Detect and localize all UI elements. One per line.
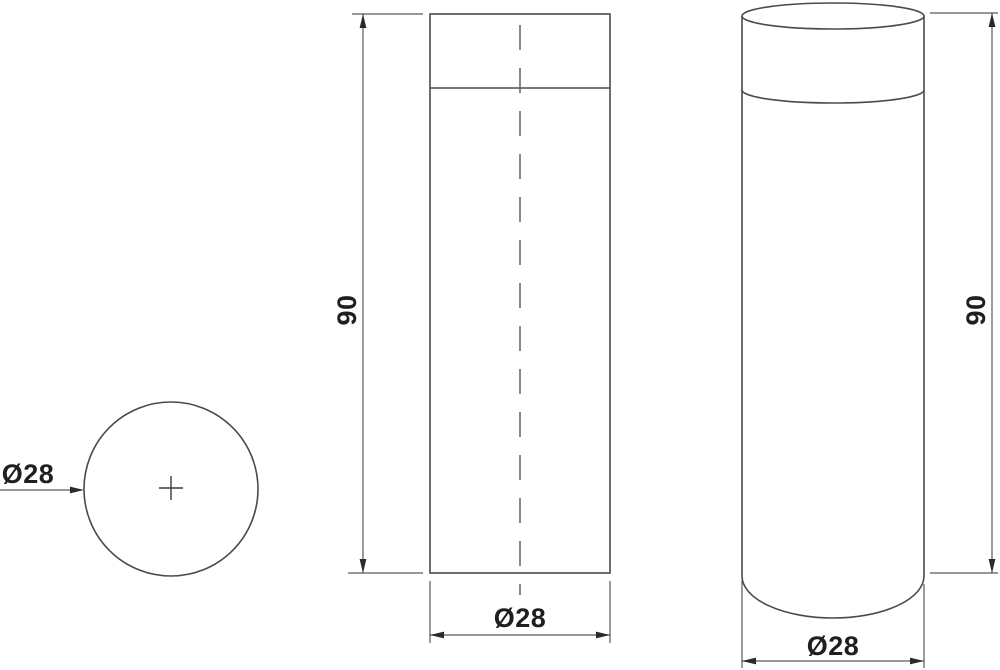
top-diameter-dimension: Ø28 <box>0 459 84 493</box>
arrowhead-down-icon <box>989 559 996 573</box>
front-view: 90 Ø28 <box>332 14 610 643</box>
arrowhead-left-icon <box>430 632 444 639</box>
top-diameter-label: Ø28 <box>2 459 55 489</box>
perspective-height-label: 90 <box>961 294 991 325</box>
arrowhead-left-icon <box>742 658 756 665</box>
perspective-diameter-label: Ø28 <box>807 631 860 661</box>
arrowhead-up-icon <box>989 13 996 27</box>
perspective-diameter-dimension: Ø28 <box>742 580 924 668</box>
perspective-height-dimension: 90 <box>930 13 998 573</box>
perspective-view: 90 Ø28 <box>742 3 998 668</box>
arrowhead-up-icon <box>360 14 367 28</box>
front-diameter-label: Ø28 <box>494 603 547 633</box>
cylinder-top-ellipse <box>742 3 924 29</box>
front-height-label: 90 <box>332 294 362 325</box>
arrowhead-right-icon <box>596 632 610 639</box>
center-mark <box>159 476 183 500</box>
front-height-dimension: 90 <box>332 14 423 573</box>
leader-arrowhead-icon <box>70 487 84 494</box>
arrowhead-down-icon <box>360 559 367 573</box>
cap-edge-arc <box>742 90 924 103</box>
arrowhead-right-icon <box>910 658 924 665</box>
top-view: Ø28 <box>0 402 258 576</box>
cylinder-three-view-drawing: Ø28 90 Ø28 <box>0 0 1000 670</box>
bottom-edge-arc <box>742 576 924 618</box>
technical-drawing-canvas: Ø28 90 Ø28 <box>0 0 1000 670</box>
